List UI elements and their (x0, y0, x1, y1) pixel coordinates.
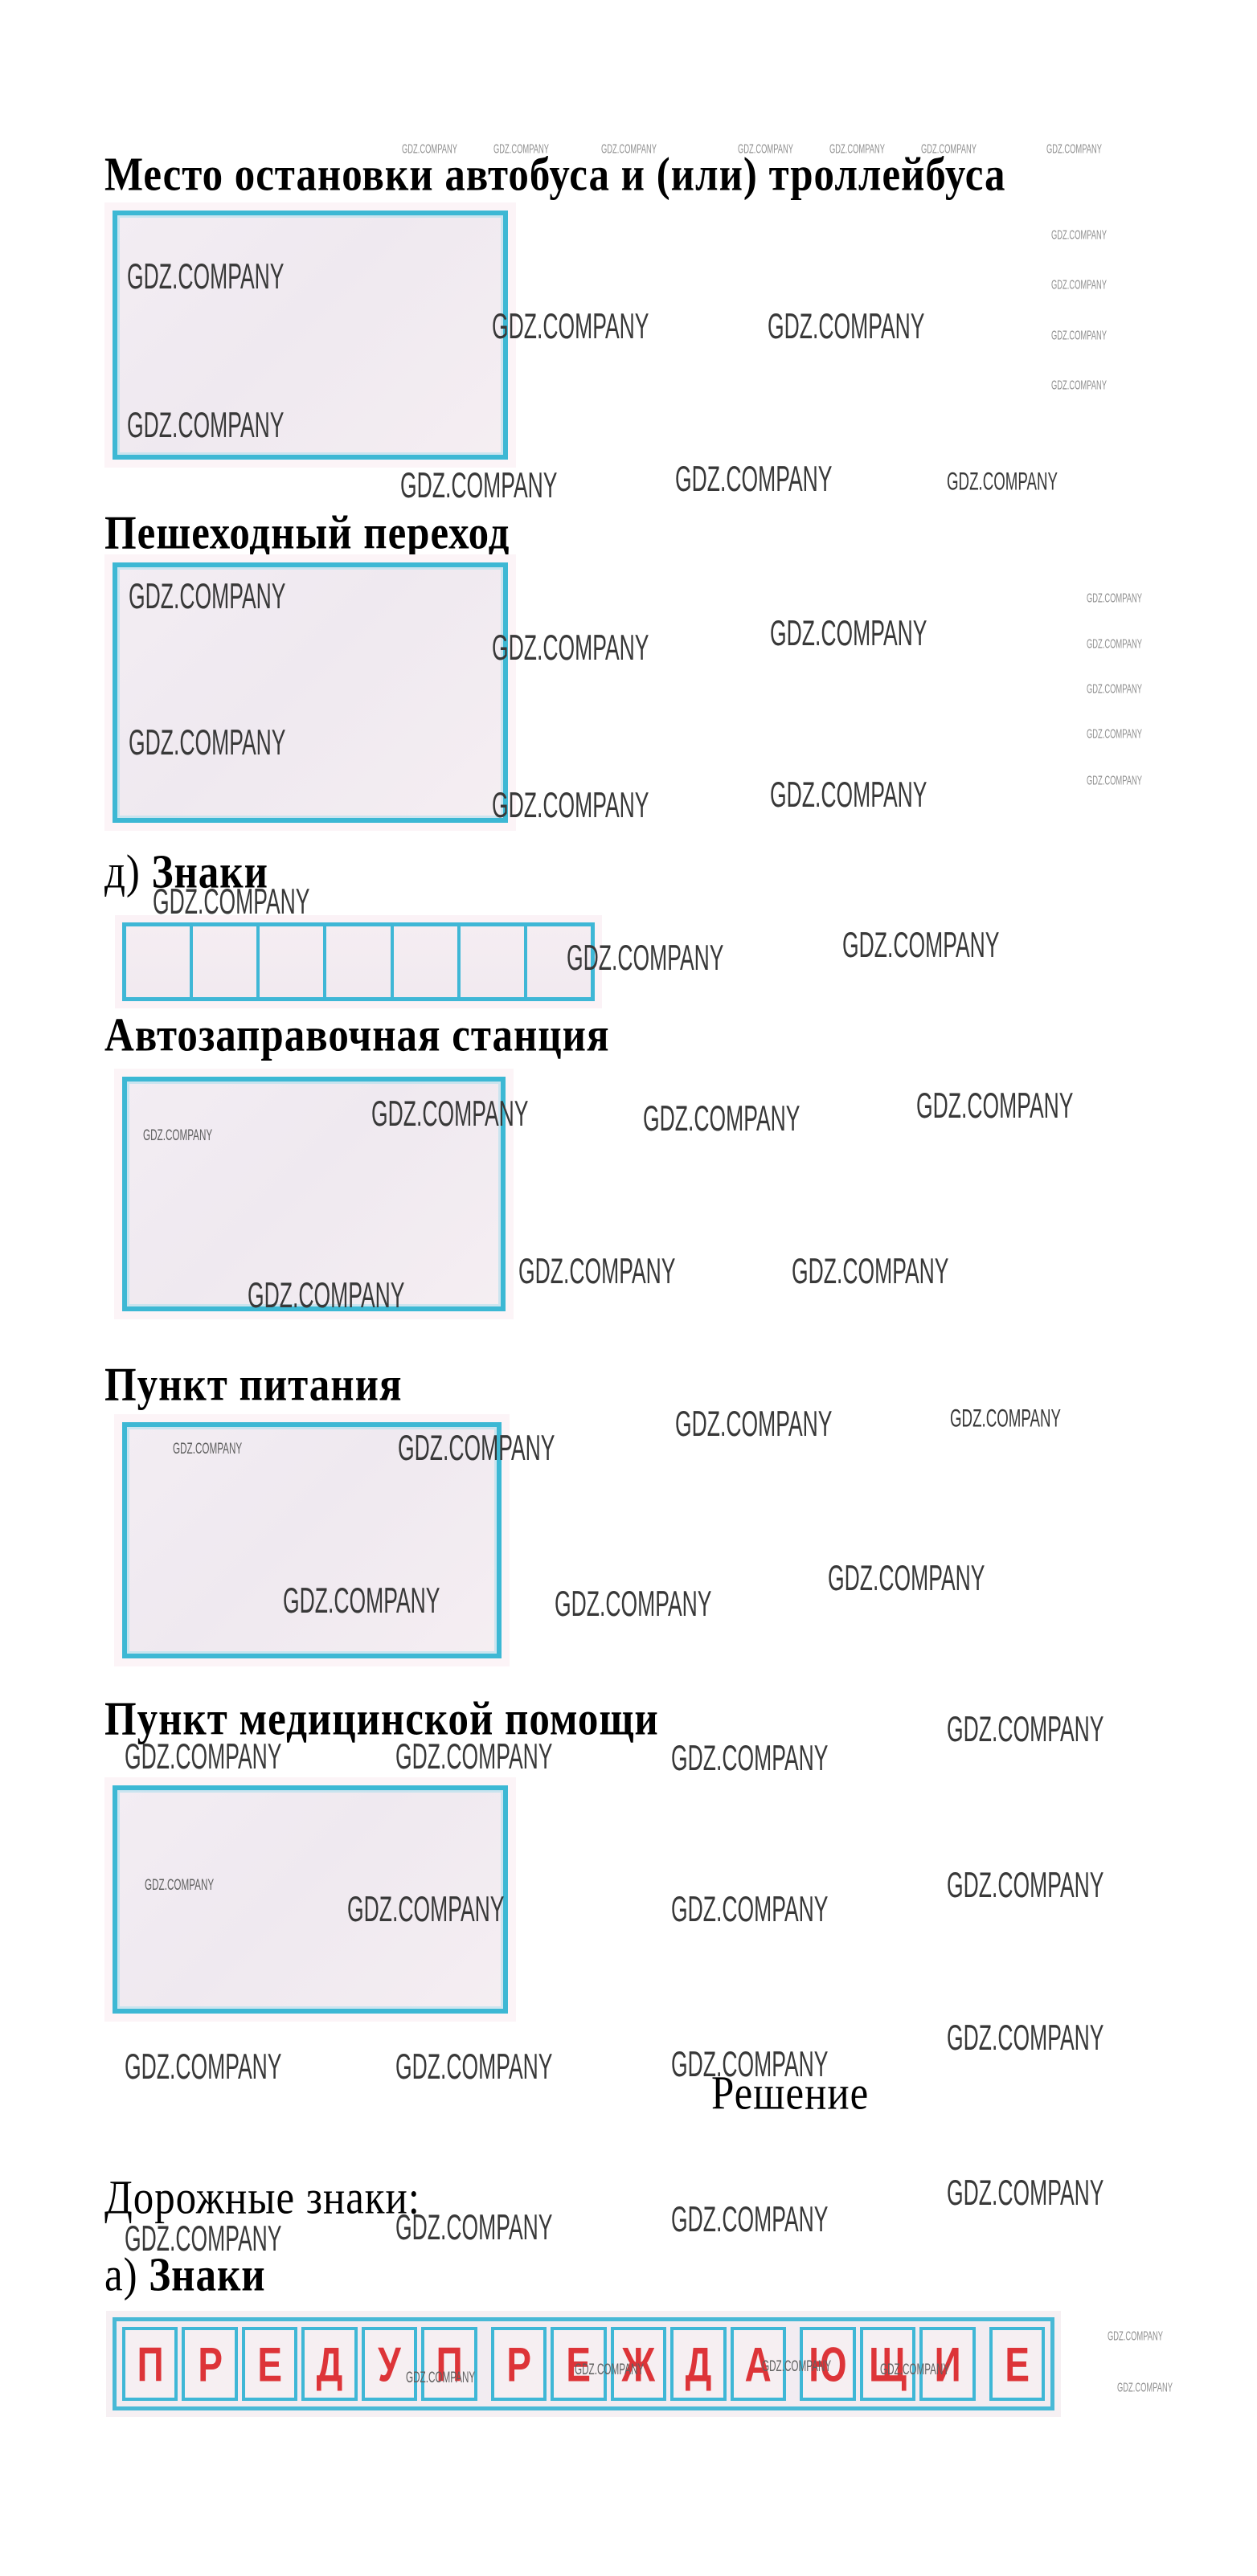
letter: Д (686, 2336, 712, 2392)
watermark: GDZ.COMPANY (671, 1890, 828, 1931)
watermark: GDZ.COMPANY (950, 1405, 1061, 1433)
watermark: GDZ.COMPANY (1051, 378, 1107, 392)
watermark: GDZ.COMPANY (283, 1581, 440, 1622)
letter: Е (257, 2336, 282, 2392)
letter: П (137, 2336, 163, 2392)
watermark: GDZ.COMPANY (153, 882, 309, 923)
empty-sign-cell (326, 926, 393, 997)
watermark: GDZ.COMPANY (567, 938, 723, 979)
empty-sign-cells (122, 922, 595, 1001)
watermark: GDZ.COMPANY (1087, 591, 1142, 605)
watermark: GDZ.COMPANY (762, 2357, 831, 2375)
watermark: GDZ.COMPANY (829, 141, 885, 156)
watermark: GDZ.COMPANY (395, 1737, 552, 1778)
letter: У (378, 2336, 401, 2392)
watermark: GDZ.COMPANY (1046, 141, 1102, 156)
watermark: GDZ.COMPANY (947, 468, 1058, 497)
watermark: GDZ.COMPANY (842, 926, 999, 967)
watermark: GDZ.COMPANY (643, 1099, 800, 1140)
watermark: GDZ.COMPANY (127, 257, 284, 298)
watermark: GDZ.COMPANY (492, 628, 649, 669)
watermark: GDZ.COMPANY (129, 723, 285, 764)
watermark: GDZ.COMPANY (671, 2200, 828, 2241)
watermark: GDZ.COMPANY (371, 1094, 528, 1135)
watermark: GDZ.COMPANY (1087, 681, 1142, 696)
watermark: GDZ.COMPANY (1087, 636, 1142, 651)
letter-cell: Р (182, 2327, 237, 2401)
empty-sign-cell (461, 926, 527, 997)
watermark: GDZ.COMPANY (671, 2045, 828, 2086)
document-page: GDZ.COMPANY GDZ.COMPANY GDZ.COMPANY GDZ.… (0, 0, 1257, 2576)
watermark: GDZ.COMPANY (1051, 227, 1107, 242)
letter: Д (317, 2336, 343, 2392)
watermark: GDZ.COMPANY (1087, 773, 1142, 787)
watermark: GDZ.COMPANY (395, 2208, 552, 2249)
watermark: GDZ.COMPANY (492, 307, 649, 348)
heading-crosswalk: Пешеходный переход (104, 506, 510, 560)
watermark: GDZ.COMPANY (770, 775, 927, 816)
watermark: GDZ.COMPANY (395, 2047, 552, 2088)
letter: Е (1005, 2336, 1030, 2392)
watermark: GDZ.COMPANY (675, 460, 832, 501)
watermark: GDZ.COMPANY (493, 141, 549, 156)
watermark: GDZ.COMPANY (575, 2361, 644, 2378)
watermark: GDZ.COMPANY (1087, 726, 1142, 741)
letter-cell: Р (491, 2327, 547, 2401)
letter-cell: У (362, 2327, 417, 2401)
empty-sign-cell (193, 926, 260, 997)
watermark: GDZ.COMPANY (828, 1559, 985, 1600)
watermark: GDZ.COMPANY (248, 1276, 404, 1317)
watermark: GDZ.COMPANY (347, 1890, 504, 1931)
watermark: GDZ.COMPANY (738, 141, 793, 156)
watermark: GDZ.COMPANY (125, 2219, 281, 2260)
watermark: GDZ.COMPANY (1051, 328, 1107, 342)
watermark: GDZ.COMPANY (947, 2018, 1103, 2059)
watermark: GDZ.COMPANY (1108, 2329, 1163, 2343)
watermark: GDZ.COMPANY (768, 307, 924, 348)
empty-sign-cell (260, 926, 326, 997)
watermark: GDZ.COMPANY (675, 1405, 832, 1445)
watermark: GDZ.COMPANY (402, 141, 457, 156)
empty-sign-cell (394, 926, 461, 997)
watermark: GDZ.COMPANY (406, 2369, 475, 2386)
watermark: GDZ.COMPANY (173, 1440, 242, 1458)
watermark: GDZ.COMPANY (671, 1739, 828, 1780)
watermark: GDZ.COMPANY (1117, 2380, 1173, 2394)
watermark: GDZ.COMPANY (555, 1584, 711, 1625)
watermark: GDZ.COMPANY (400, 466, 557, 507)
watermark: GDZ.COMPANY (125, 1737, 281, 1778)
watermark: GDZ.COMPANY (518, 1252, 675, 1293)
watermark: GDZ.COMPANY (770, 614, 927, 655)
item-d-prefix: д) (104, 846, 152, 898)
letter-cell: Е (989, 2327, 1045, 2401)
letter-cell: Д (301, 2327, 357, 2401)
watermark: GDZ.COMPANY (492, 786, 649, 827)
watermark: GDZ.COMPANY (145, 1876, 214, 1894)
watermark: GDZ.COMPANY (792, 1252, 948, 1293)
watermark: GDZ.COMPANY (143, 1126, 212, 1144)
watermark: GDZ.COMPANY (947, 2173, 1103, 2214)
watermark: GDZ.COMPANY (127, 406, 284, 447)
watermark: GDZ.COMPANY (947, 1710, 1103, 1751)
watermark: GDZ.COMPANY (125, 2047, 281, 2088)
watermark: GDZ.COMPANY (921, 141, 977, 156)
road-signs-intro: Дорожные знаки: (104, 2171, 420, 2225)
letter: Р (506, 2336, 531, 2392)
watermark: GDZ.COMPANY (129, 577, 285, 618)
letter-cell: П (421, 2327, 477, 2401)
watermark: GDZ.COMPANY (880, 2361, 949, 2378)
heading-food-point: Пункт питания (104, 1358, 403, 1412)
watermark: GDZ.COMPANY (1051, 277, 1107, 292)
watermark: GDZ.COMPANY (916, 1086, 1073, 1127)
letter: Р (198, 2336, 223, 2392)
heading-gas-station: Автозаправочная станция (104, 1008, 610, 1062)
empty-sign-cell (126, 926, 193, 997)
letter-cell: Е (242, 2327, 297, 2401)
watermark: GDZ.COMPANY (601, 141, 657, 156)
watermark: GDZ.COMPANY (947, 1866, 1103, 1907)
letter-cell: П (122, 2327, 178, 2401)
letter-cell: Д (670, 2327, 726, 2401)
watermark: GDZ.COMPANY (398, 1429, 555, 1470)
